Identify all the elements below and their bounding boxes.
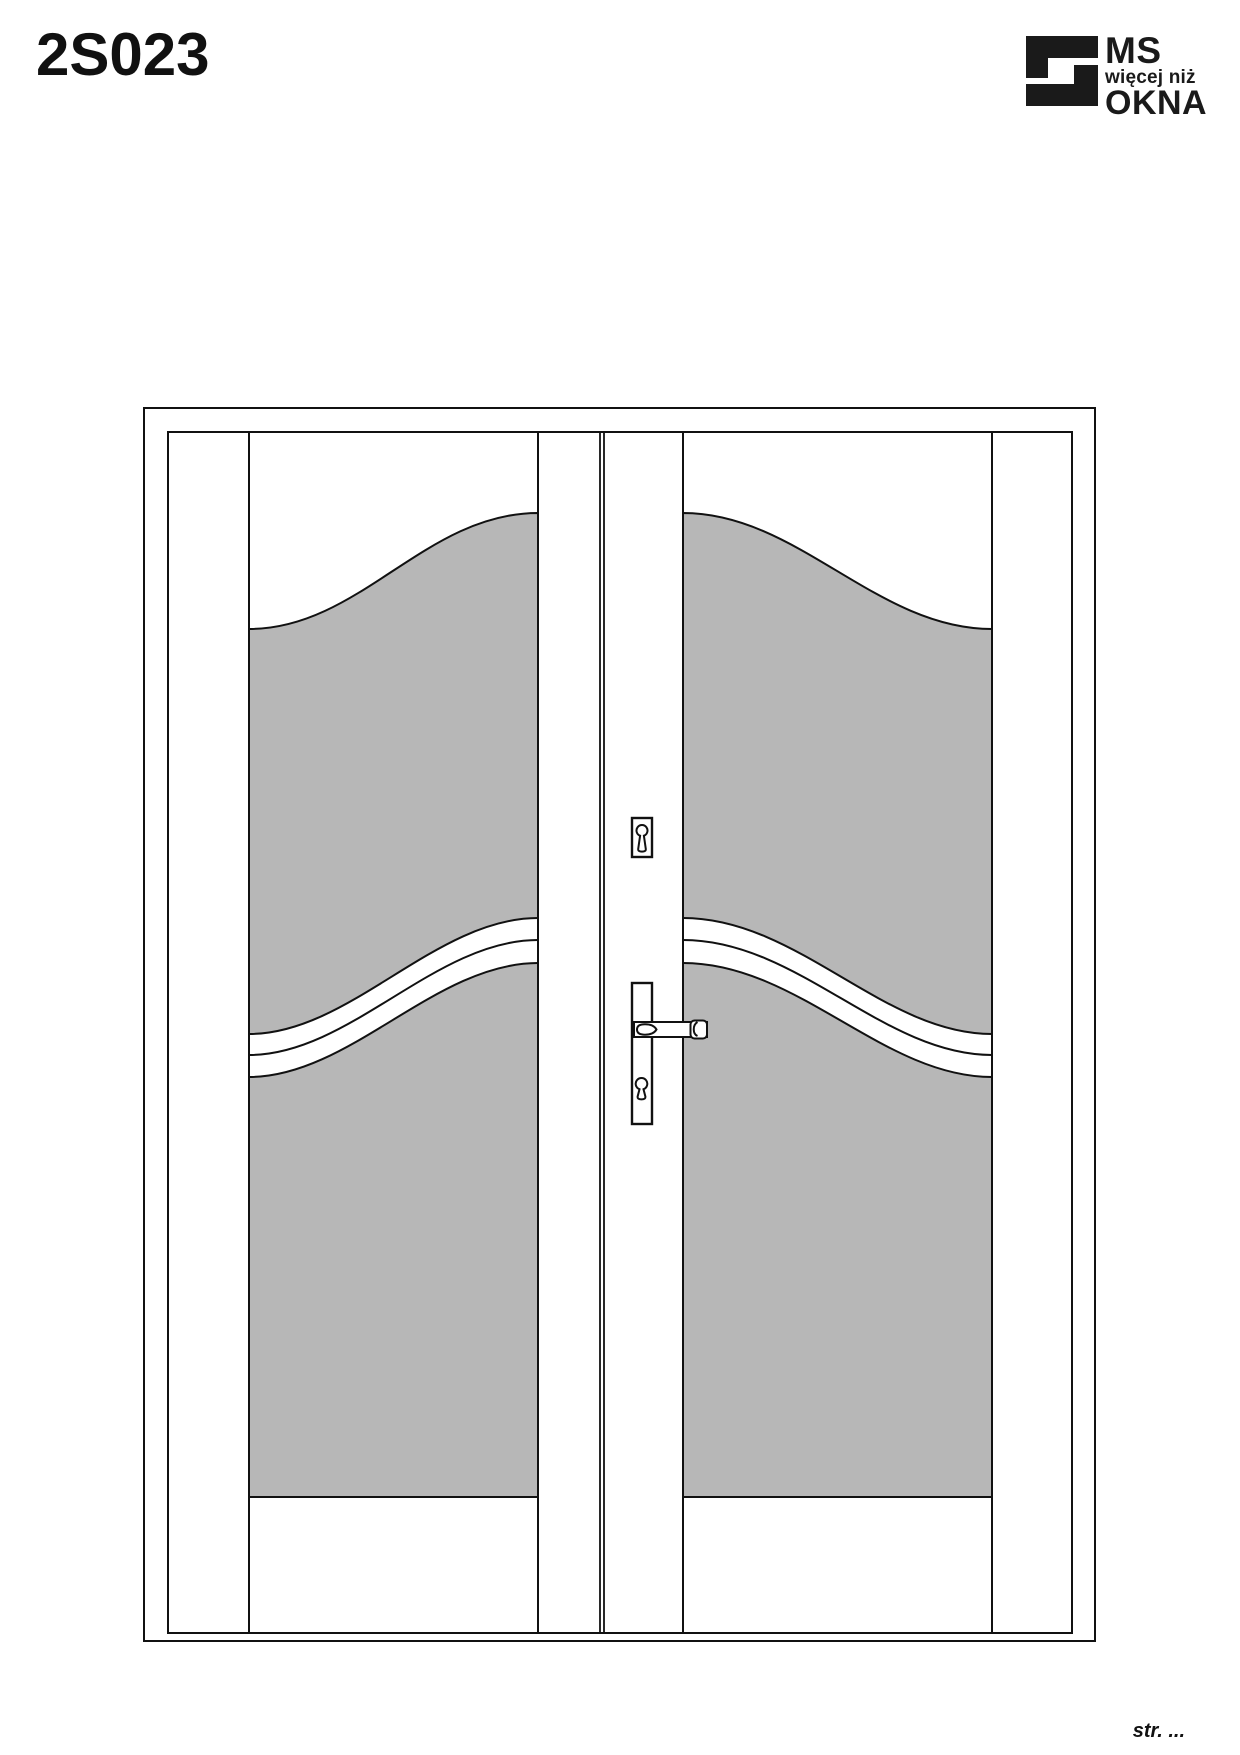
page-number-label: str. ... (1133, 1720, 1185, 1743)
handle-pivot (637, 1024, 657, 1034)
backplate-keyhole-icon (636, 1078, 648, 1099)
handle-backplate (632, 983, 652, 1124)
door-drawing (0, 0, 1240, 1755)
door-frame-group (144, 408, 1095, 1641)
catalog-page: 2S023 MS więcej niż OKNA (0, 0, 1240, 1755)
